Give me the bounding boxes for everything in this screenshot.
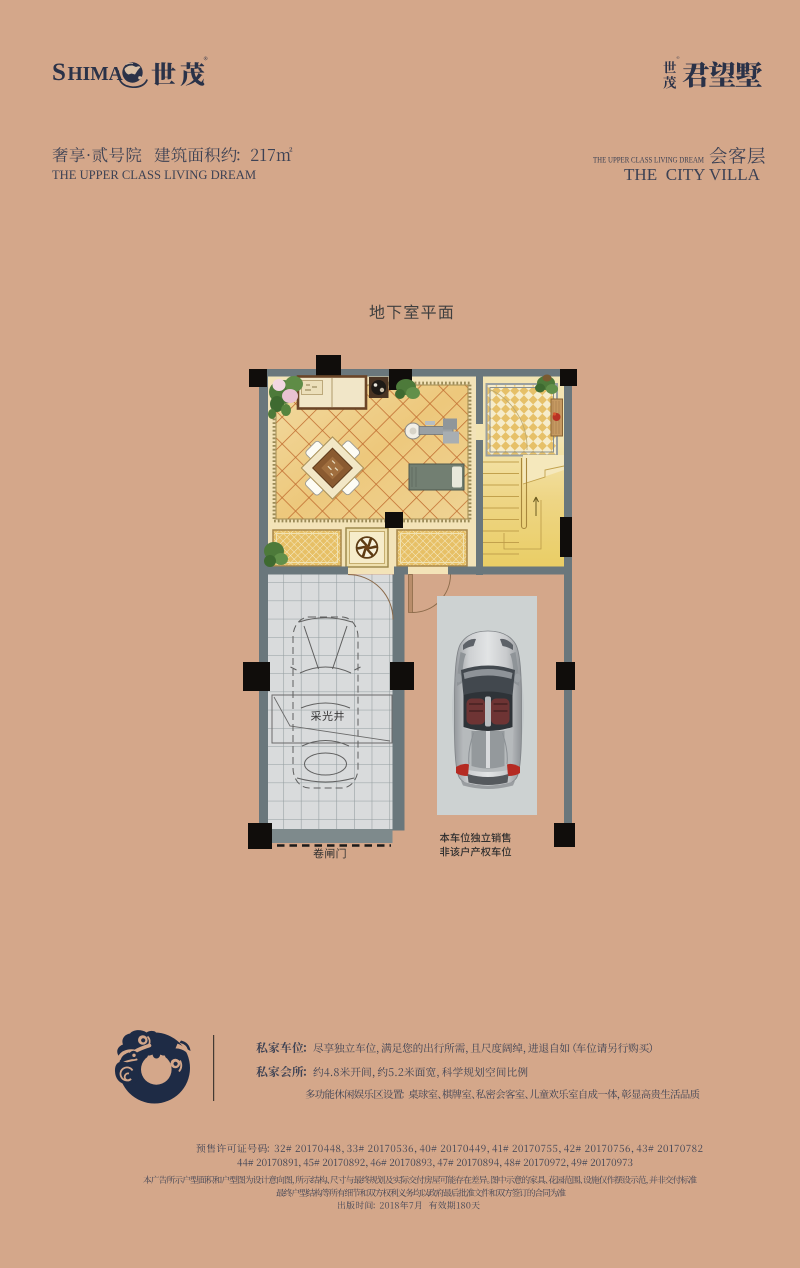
- svg-text:HIMA: HIMA: [68, 64, 123, 85]
- svg-text:THE CITY VILLA: THE CITY VILLA: [624, 165, 761, 184]
- svg-text:THE UPPER CLASS LIVING DREAM: THE UPPER CLASS LIVING DREAM: [52, 168, 256, 182]
- svg-text:S: S: [52, 59, 66, 86]
- svg-text:THE UPPER CLASS LIVING DREAM: THE UPPER CLASS LIVING DREAM: [593, 155, 704, 165]
